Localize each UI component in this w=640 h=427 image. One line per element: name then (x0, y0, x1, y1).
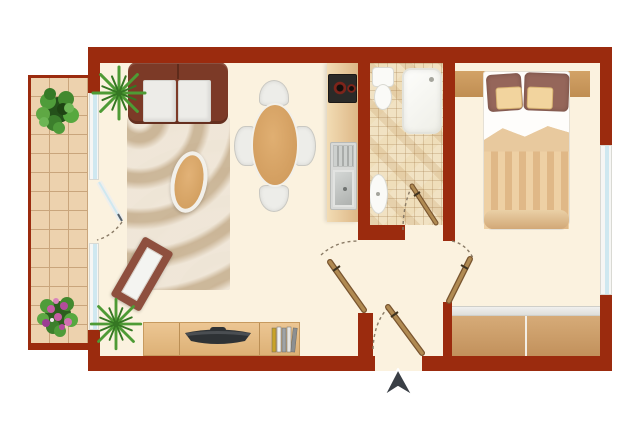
bed-foot-roll (484, 210, 569, 229)
wardrobe-top-edge (450, 306, 602, 316)
balcony-floor (31, 78, 88, 343)
washbasin-drain (376, 192, 380, 196)
burner-small (346, 83, 357, 94)
wall-bottom-right (422, 356, 612, 371)
entry-arrow (384, 369, 413, 396)
balcony-wall-left (28, 75, 31, 349)
wall-right-lower (600, 295, 612, 371)
sink-basin (333, 170, 354, 207)
tv-sideboard (143, 322, 300, 356)
bathtub (402, 68, 442, 134)
sofa-cushion-right (178, 80, 211, 122)
balcony-window-lower (89, 243, 99, 330)
wall-top (88, 47, 612, 63)
wall-right-upper (600, 47, 612, 145)
balcony-wall-top (28, 75, 88, 78)
sink-drainboard (333, 145, 354, 167)
wall-left-upper (88, 47, 100, 93)
wall-hallway-stub (358, 313, 373, 356)
dining-table (251, 103, 299, 187)
entrance-threshold (375, 356, 422, 371)
toilet-bowl (374, 84, 392, 110)
wall-bottom-left (88, 356, 375, 371)
balcony-wall-bottom (28, 343, 90, 350)
pillow-inner-right (527, 87, 554, 110)
wall-kitchen-bathroom (358, 63, 370, 240)
bathtub-drain (429, 77, 434, 82)
sofa-cushion-left (143, 80, 176, 122)
balcony-window-upper (89, 93, 99, 180)
floor-plan-canvas (0, 0, 640, 427)
wardrobe (450, 316, 602, 356)
wall-bathroom-bottom (358, 225, 405, 240)
bedroom-window (600, 145, 612, 295)
wall-bathroom-bedroom (443, 63, 455, 241)
pillow-inner-left (495, 86, 522, 109)
wall-bedroom-stub (443, 302, 452, 356)
